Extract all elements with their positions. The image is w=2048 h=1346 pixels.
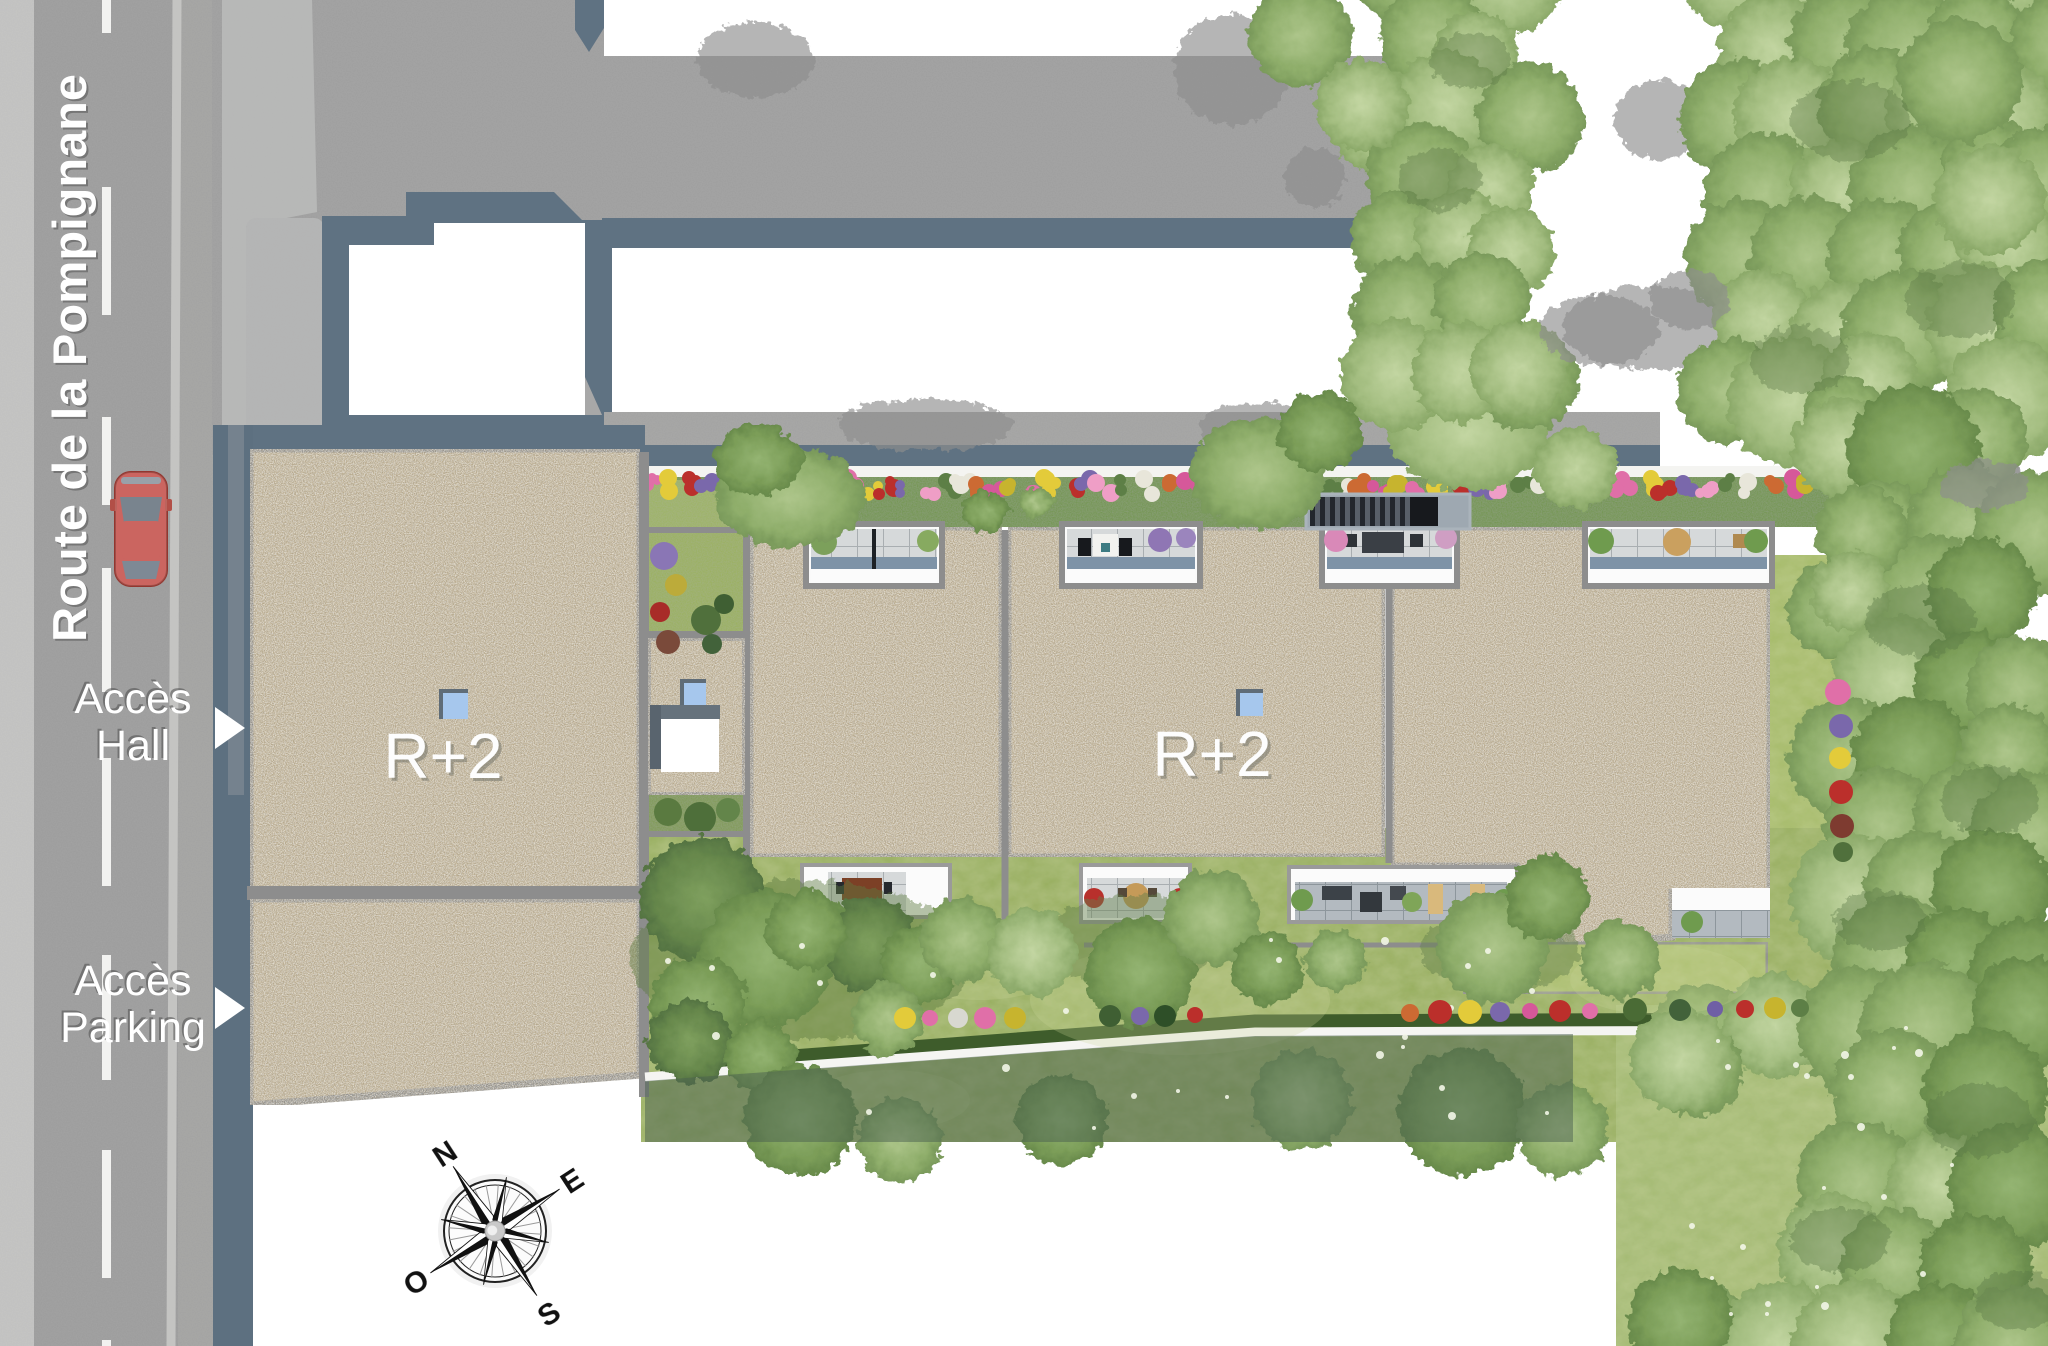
svg-text:Accès: Accès	[74, 675, 191, 723]
svg-text:Hall: Hall	[96, 722, 170, 770]
svg-text:Route de la Pompignane: Route de la Pompignane	[43, 74, 96, 642]
svg-text:R+2: R+2	[383, 720, 502, 792]
svg-text:R+2: R+2	[1152, 718, 1271, 790]
svg-text:Accès: Accès	[74, 957, 191, 1005]
svg-text:Parking: Parking	[60, 1004, 206, 1052]
